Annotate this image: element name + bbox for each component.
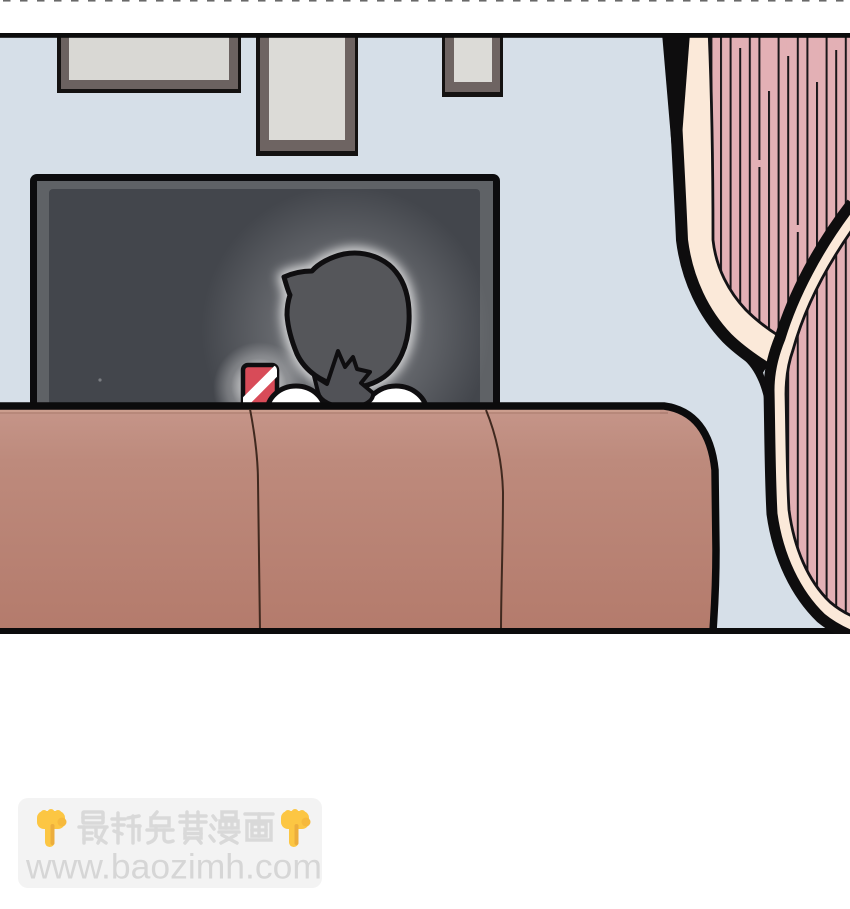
svg-text:www.baozimh.com: www.baozimh.com [25, 847, 322, 887]
